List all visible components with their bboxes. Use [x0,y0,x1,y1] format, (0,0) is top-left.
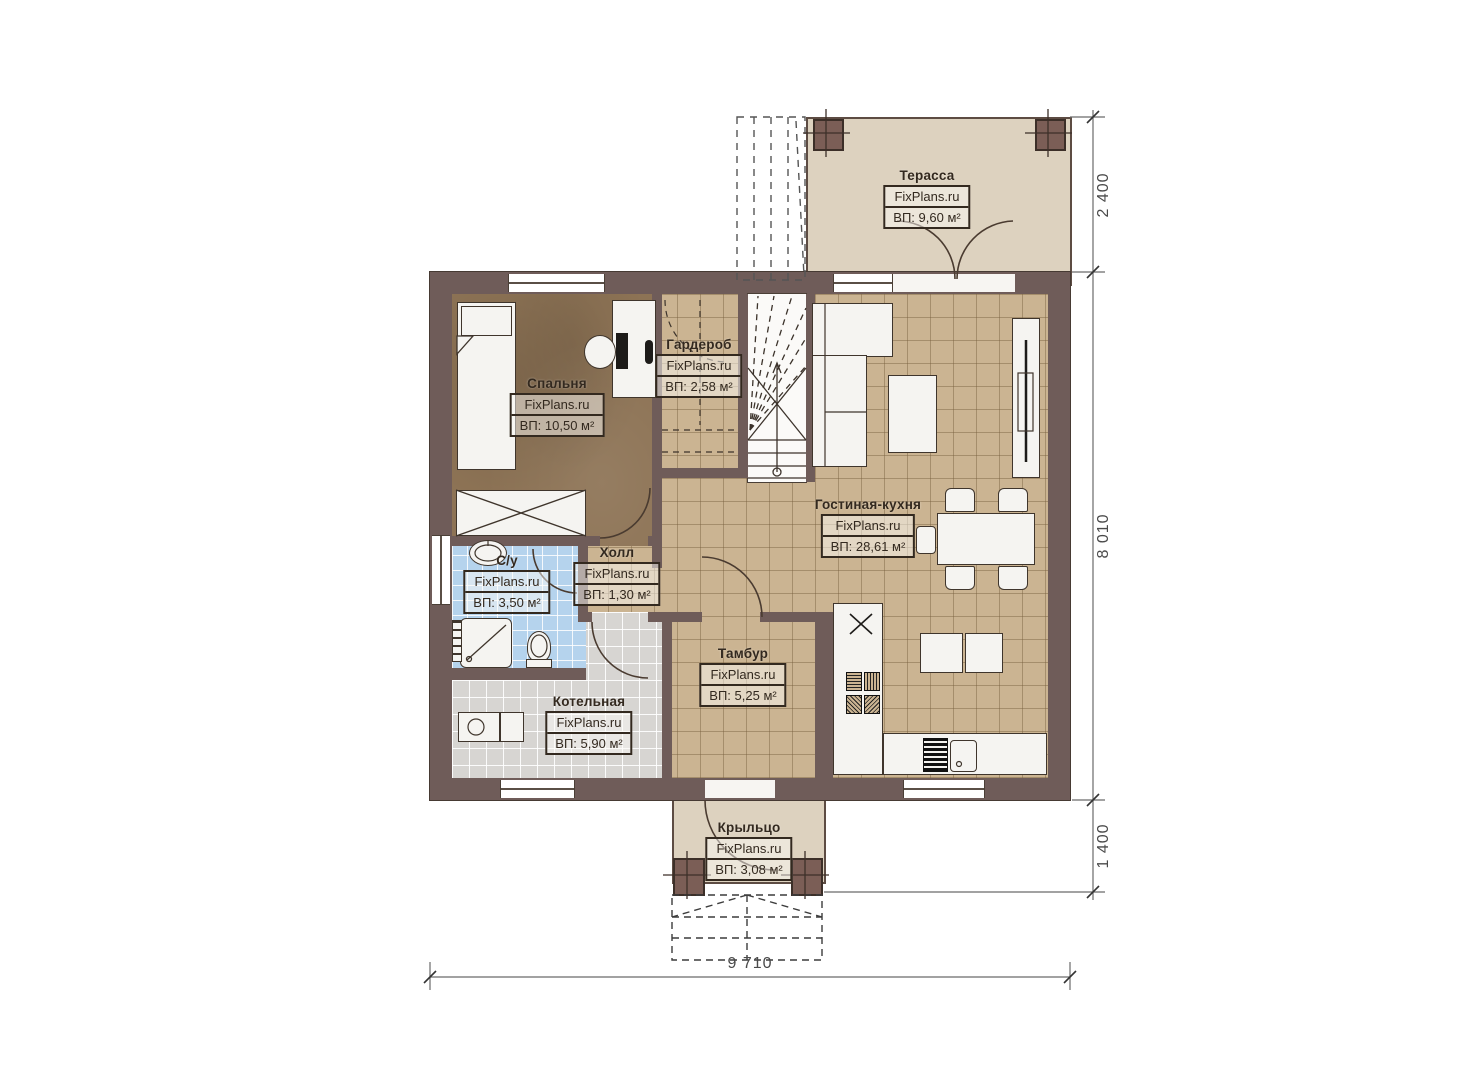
room-area: ВП: 28,61 м² [823,537,914,556]
room-area: ВП: 9,60 м² [885,208,968,227]
wall-hall-south-a [578,612,592,622]
dimension-house-depth: 8 010 [1095,513,1113,558]
watermark: FixPlans.ru [707,839,790,860]
room-name: С/у [463,553,550,568]
room-label-porch: Крыльцо FixPlans.ru ВП: 3,08 м² [705,820,792,881]
watermark: FixPlans.ru [547,713,630,734]
sofa-chaise [812,303,893,357]
room-label-bathroom: С/у FixPlans.ru ВП: 3,50 м² [463,553,550,614]
room-area: ВП: 5,90 м² [547,734,630,753]
dining-chair-2 [998,488,1028,512]
wall-hall-south-b [648,612,662,622]
label-box: FixPlans.ru ВП: 5,25 м² [699,663,786,707]
room-name: Котельная [545,694,632,709]
wall-wardrobe-south [662,468,738,478]
watermark: FixPlans.ru [512,395,603,416]
floor-plan-canvas: Терасса FixPlans.ru ВП: 9,60 м² Спальня … [0,0,1473,1080]
dining-chair-4 [998,566,1028,590]
room-name: Холл [573,545,660,560]
bed-pillow [461,306,512,336]
label-box: FixPlans.ru ВП: 3,08 м² [705,837,792,881]
room-area: ВП: 1,30 м² [575,585,658,604]
room-area: ВП: 5,25 м² [701,686,784,705]
stove [846,672,880,714]
wall-bath-south [452,668,586,680]
label-box: FixPlans.ru ВП: 2,58 м² [655,354,742,398]
boiler-unit [458,712,500,742]
desk-monitor [616,333,628,369]
dimension-house-width: 9 710 [727,955,772,973]
room-area: ВП: 2,58 м² [657,377,740,396]
dish-drainer [923,738,948,772]
room-area: ВП: 10,50 м² [512,416,603,435]
wall-tambour-north-b [760,612,833,622]
watermark: FixPlans.ru [885,187,968,208]
toilet-bowl [527,631,551,662]
room-name: Крыльцо [705,820,792,835]
kitchen-island-b [965,633,1003,673]
wall-tambour-east [815,612,833,778]
window-bedroom-top [508,274,605,292]
window-terrace-side [833,274,893,292]
room-area: ВП: 3,50 м² [465,593,548,612]
watermark: FixPlans.ru [701,665,784,686]
watermark: FixPlans.ru [575,564,658,585]
wall-tambour-north-a [672,612,702,622]
dimension-terrace-depth: 2 400 [1095,172,1113,217]
kitchen-island-a [920,633,963,673]
stair-projection [737,117,805,280]
room-label-hall: Холл FixPlans.ru ВП: 1,30 м² [573,545,660,606]
window-bathroom-left [432,535,450,605]
boiler-unit-2 [500,712,524,742]
tv-stand [1012,318,1040,478]
room-name: Спальня [510,376,605,391]
porch-steps [672,895,822,960]
label-box: FixPlans.ru ВП: 5,90 м² [545,711,632,755]
towel-radiator [452,620,462,662]
dimension-porch-depth: 1 400 [1095,823,1113,868]
room-label-terrace: Терасса FixPlans.ru ВП: 9,60 м² [883,168,970,229]
door-opening-entrance [705,780,775,798]
room-label-living-kitchen: Гостиная-кухня FixPlans.ru ВП: 28,61 м² [815,497,921,558]
room-label-tambour: Тамбур FixPlans.ru ВП: 5,25 м² [699,646,786,707]
wardrobe-closet [456,490,586,536]
label-box: FixPlans.ru ВП: 1,30 м² [573,562,660,606]
sofa-body [812,355,867,467]
room-name: Гостиная-кухня [815,497,921,512]
label-box: FixPlans.ru ВП: 9,60 м² [883,185,970,229]
room-name: Тамбур [699,646,786,661]
shower-tray [460,618,512,668]
toilet-tank [526,659,552,668]
room-label-bedroom: Спальня FixPlans.ru ВП: 10,50 м² [510,376,605,437]
label-box: FixPlans.ru ВП: 3,50 м² [463,570,550,614]
room-label-wardrobe: Гардероб FixPlans.ru ВП: 2,58 м² [655,337,742,398]
watermark: FixPlans.ru [823,516,914,537]
terrace-column-right [1035,119,1066,151]
watermark: FixPlans.ru [465,572,548,593]
terrace-column-left [813,119,844,151]
label-box: FixPlans.ru ВП: 10,50 м² [510,393,605,437]
porch-column-right [791,858,823,896]
room-area: ВП: 3,08 м² [707,860,790,879]
room-label-boiler: Котельная FixPlans.ru ВП: 5,90 м² [545,694,632,755]
dining-chair-1 [945,488,975,512]
watermark: FixPlans.ru [657,356,740,377]
kitchen-sink [950,740,977,772]
dining-chair-3 [945,566,975,590]
window-boiler-bottom [500,780,575,798]
stairs-floor [748,294,806,482]
door-opening-terrace [893,274,1015,292]
label-box: FixPlans.ru ВП: 28,61 м² [821,514,916,558]
room-name: Гардероб [655,337,742,352]
room-name: Терасса [883,168,970,183]
porch-column-left [673,858,705,896]
desk-keyboard [645,340,653,364]
wall-tambour-west [662,612,672,778]
office-chair [584,335,616,369]
window-kitchen-bottom [903,780,985,798]
coffee-table [888,375,937,453]
dining-table [937,513,1035,565]
